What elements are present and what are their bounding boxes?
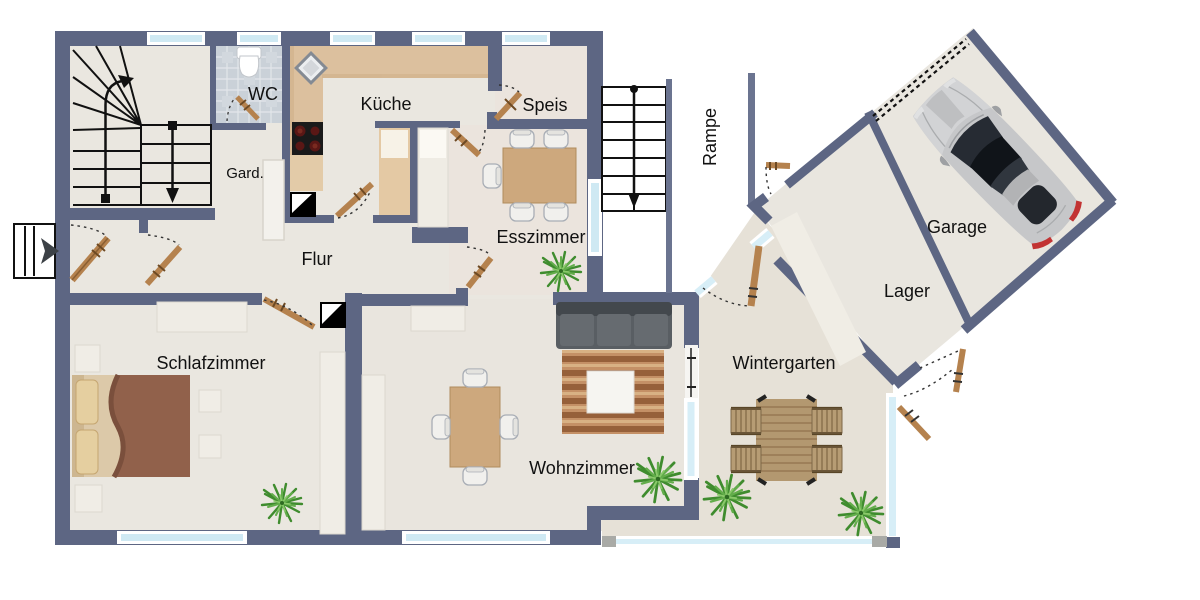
svg-text:Lager: Lager bbox=[884, 281, 930, 301]
svg-text:Schlafzimmer: Schlafzimmer bbox=[156, 353, 265, 373]
svg-text:Rampe: Rampe bbox=[700, 108, 720, 166]
svg-text:WC: WC bbox=[248, 84, 278, 104]
svg-text:Wintergarten: Wintergarten bbox=[732, 353, 835, 373]
svg-text:Speis: Speis bbox=[522, 95, 567, 115]
svg-text:Gard.: Gard. bbox=[226, 165, 264, 182]
svg-text:Esszimmer: Esszimmer bbox=[497, 227, 586, 247]
svg-text:Küche: Küche bbox=[360, 94, 411, 114]
svg-text:Garage: Garage bbox=[927, 217, 987, 237]
svg-text:Flur: Flur bbox=[302, 249, 333, 269]
svg-text:Wohnzimmer: Wohnzimmer bbox=[529, 458, 635, 478]
